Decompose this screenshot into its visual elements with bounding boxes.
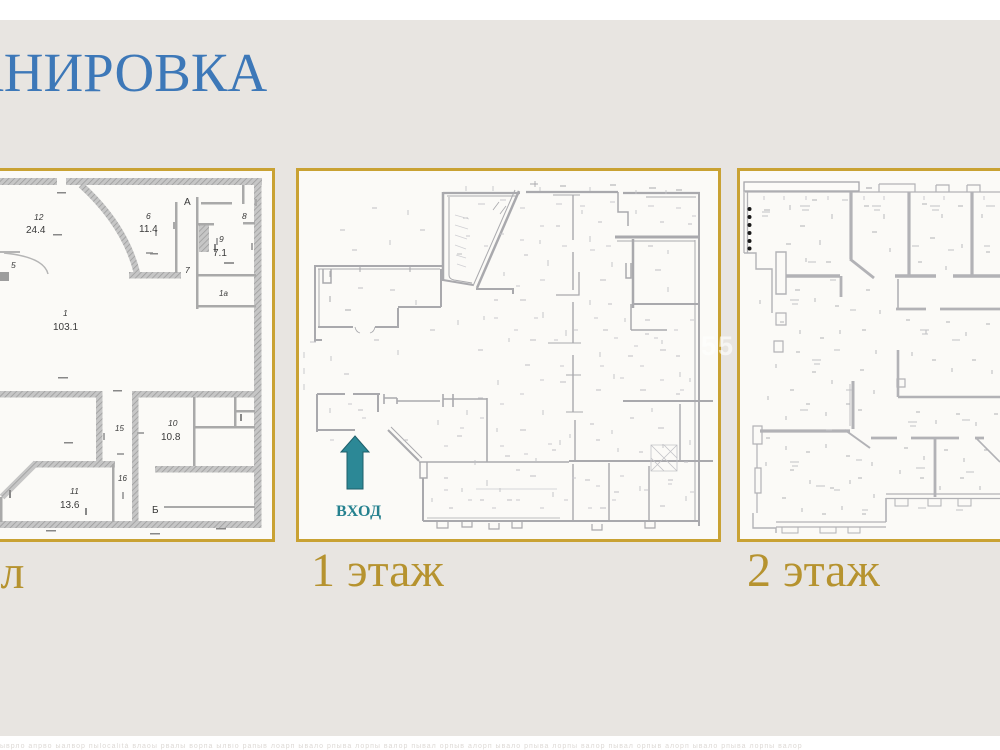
svg-text:5: 5 [11, 260, 16, 270]
svg-text:10.8: 10.8 [161, 432, 181, 443]
svg-text:16: 16 [118, 474, 127, 483]
svg-text:13.6: 13.6 [60, 500, 80, 511]
svg-text:12: 12 [34, 212, 44, 222]
svg-text:15: 15 [115, 424, 124, 433]
svg-text:ВХОД: ВХОД [336, 503, 382, 520]
svg-text:24.4: 24.4 [26, 225, 46, 236]
svg-text:1: 1 [63, 308, 68, 318]
svg-text:7.1: 7.1 [213, 248, 227, 259]
svg-text:7: 7 [185, 265, 190, 275]
svg-text:6: 6 [146, 211, 151, 221]
svg-text:Б: Б [152, 505, 159, 516]
svg-text:А: А [184, 197, 191, 208]
svg-text:8: 8 [242, 211, 247, 221]
svg-text:10: 10 [168, 418, 178, 428]
svg-text:9: 9 [219, 234, 224, 244]
svg-text:103.1: 103.1 [53, 322, 78, 333]
svg-text:11.4: 11.4 [139, 224, 158, 235]
svg-text:1а: 1а [219, 289, 228, 298]
svg-text:11: 11 [70, 486, 79, 496]
